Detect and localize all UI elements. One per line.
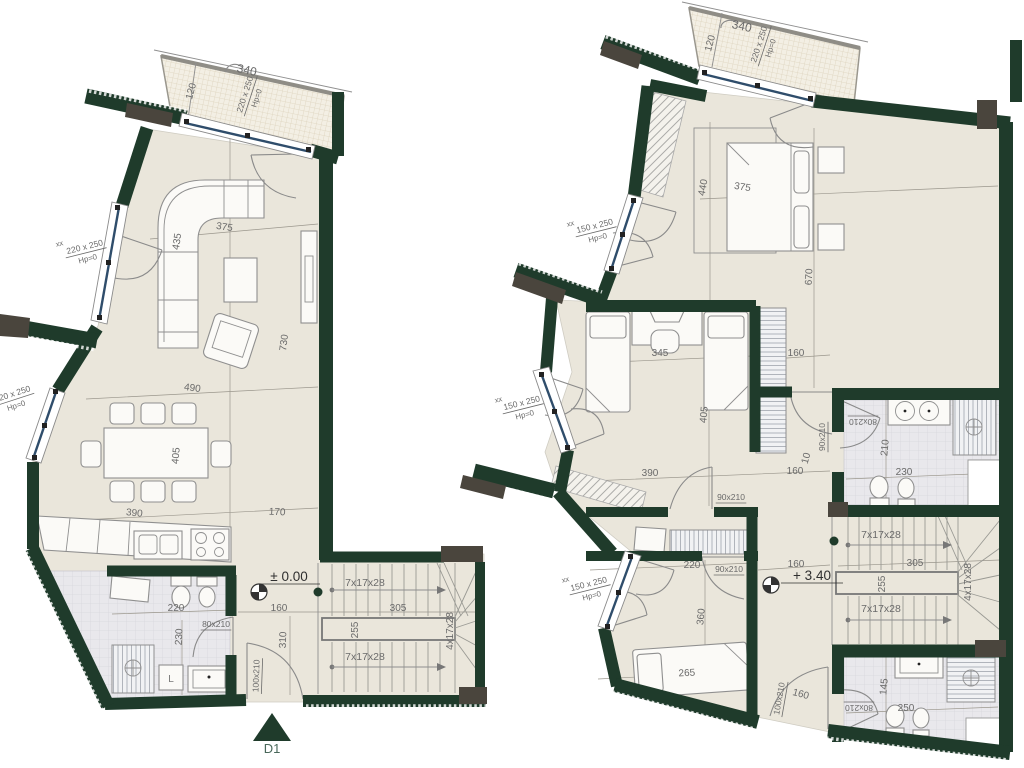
wall-column (459, 687, 487, 704)
dim-stair-305-ground: 305 (390, 603, 407, 614)
svg-text:± 0.00: ± 0.00 (270, 569, 307, 584)
bidet (199, 587, 215, 607)
svg-text:90x210: 90x210 (717, 492, 745, 502)
washer-label: L (168, 674, 174, 685)
stair-flight-upper-ground: 7x17x28 (345, 577, 385, 589)
shelf (110, 576, 150, 602)
dim-bed3-220: 220 (684, 560, 701, 571)
wall-column (0, 314, 30, 338)
svg-text:310: 310 (278, 631, 290, 648)
toilet-tank (171, 576, 191, 586)
dim-bath-220: 220 (168, 603, 185, 614)
shaft (968, 460, 1002, 506)
svg-text:220: 220 (168, 603, 185, 614)
dim-dining-405: 405 (170, 447, 182, 465)
door-size-bed2: 90x210 (716, 492, 747, 503)
bidet-tank (197, 577, 217, 586)
svg-text:145: 145 (878, 678, 890, 696)
svg-text:80x210: 80x210 (849, 417, 877, 427)
nightstand (818, 147, 844, 173)
svg-text:230: 230 (174, 628, 186, 646)
svg-text:670: 670 (804, 268, 816, 286)
stair-landing (836, 572, 958, 594)
dim-bath2-250: 250 (898, 703, 915, 714)
level-marker-ground (251, 584, 267, 600)
tv-unit (301, 231, 317, 323)
floor-plan-canvas: 340120220 x 250Hp=0375435730490405390170… (0, 0, 1024, 768)
stair-column (314, 588, 323, 597)
svg-text:80x210: 80x210 (202, 619, 230, 629)
dim-hall-160-ground: 160 (271, 603, 288, 614)
svg-text:7x17x28: 7x17x28 (345, 577, 385, 589)
svg-text:90x210: 90x210 (715, 564, 743, 574)
dim-bed2-390: 390 (642, 468, 659, 479)
svg-text:80x210: 80x210 (845, 703, 873, 713)
dim-hall-310: 310 (278, 631, 290, 648)
closet (670, 530, 752, 554)
dim-master-670: 670 (804, 268, 816, 286)
door-size-bath1-inner: 80x210 (848, 416, 879, 427)
bidet (898, 478, 914, 498)
door-size-bed3: 90x210 (714, 564, 745, 575)
stair-flight-upper-upper: 7x17x28 (861, 529, 901, 541)
svg-text:405: 405 (170, 447, 182, 465)
wall-column (977, 100, 997, 129)
svg-text:160: 160 (271, 603, 288, 614)
stair-winder-upper: 4x17x28 (963, 563, 974, 601)
svg-text:7x17x28: 7x17x28 (345, 651, 385, 663)
shaft (966, 718, 1000, 745)
dim-stair-255-ground: 255 (350, 621, 361, 638)
svg-text:390: 390 (642, 468, 659, 479)
svg-text:345: 345 (652, 348, 669, 359)
pillow (794, 206, 809, 248)
svg-text:210: 210 (879, 439, 891, 457)
svg-text:160: 160 (787, 466, 804, 477)
dining-table (104, 428, 208, 478)
svg-text:4x17x28: 4x17x28 (445, 612, 456, 650)
pillow (708, 316, 744, 338)
wall-column (975, 640, 1006, 657)
dim-bed2-405: 405 (698, 406, 710, 424)
svg-text:730: 730 (278, 333, 291, 351)
dim-dining-490: 490 (183, 382, 201, 395)
dim-bath1-210: 210 (879, 439, 891, 457)
svg-text:405: 405 (698, 406, 710, 424)
dim-bath-230: 230 (174, 628, 186, 646)
dim-bed3-265: 265 (678, 668, 696, 680)
pillow (794, 151, 809, 193)
svg-text:360: 360 (695, 608, 707, 626)
svg-text:+ 3.40: + 3.40 (793, 568, 831, 583)
svg-text:L: L (168, 674, 174, 685)
svg-text:D1: D1 (264, 741, 281, 756)
svg-text:490: 490 (183, 382, 201, 395)
door-size-bath-ground: 80x210 (201, 619, 232, 630)
svg-text:7x17x28: 7x17x28 (861, 603, 901, 615)
dim-hall-160-a: 160 (788, 348, 805, 359)
svg-text:305: 305 (907, 558, 924, 569)
door-size-bath1: 90x210 (817, 422, 828, 453)
svg-text:170: 170 (269, 507, 287, 519)
entry-marker-text: D1 (264, 741, 281, 756)
svg-text:220: 220 (684, 560, 701, 571)
svg-text:305: 305 (390, 603, 407, 614)
svg-text:390: 390 (125, 507, 143, 520)
dim-bed3-360: 360 (695, 608, 707, 626)
svg-text:4x17x28: 4x17x28 (963, 563, 974, 601)
svg-text:90x210: 90x210 (817, 423, 827, 451)
nightstand (818, 224, 844, 250)
stair-column (830, 537, 839, 546)
dim-bath1-230: 230 (896, 467, 913, 478)
coffee-table (224, 258, 257, 302)
svg-text:230: 230 (896, 467, 913, 478)
wall-column (828, 502, 848, 517)
svg-text:255: 255 (350, 621, 361, 638)
svg-text:7x17x28: 7x17x28 (861, 529, 901, 541)
vanity (888, 397, 950, 425)
pillow (590, 316, 626, 338)
dim-bath2-145: 145 (878, 678, 890, 696)
toilet (870, 476, 888, 498)
svg-text:250: 250 (898, 703, 915, 714)
dim-hall-160-upper: 160 (788, 559, 805, 570)
svg-text:265: 265 (678, 668, 696, 680)
dim-hall-170: 170 (269, 507, 287, 519)
dim-living-730: 730 (278, 333, 291, 351)
svg-text:255: 255 (877, 575, 888, 592)
stair-landing (322, 618, 455, 640)
svg-text:100x210: 100x210 (250, 659, 261, 692)
stove (191, 529, 229, 560)
level-marker-upper (763, 577, 779, 593)
dim-bed2-345: 345 (652, 348, 669, 359)
svg-text:160: 160 (788, 348, 805, 359)
dim-hall-160-b: 160 (787, 466, 804, 477)
desk-monitor (650, 311, 684, 322)
stair-flight-lower-upper: 7x17x28 (861, 603, 901, 615)
stair-flight-lower-ground: 7x17x28 (345, 651, 385, 663)
stair-winder-ground: 4x17x28 (445, 612, 456, 650)
chair (110, 403, 134, 424)
wall-column (441, 546, 483, 562)
dim-kitchen-390: 390 (125, 507, 143, 520)
bidet (913, 708, 929, 728)
dim-stair-255-upper: 255 (877, 575, 888, 592)
door-size-bath2: 80x210 (844, 702, 875, 713)
shelf (634, 527, 666, 552)
dim-stair-305-upper: 305 (907, 558, 924, 569)
svg-text:160: 160 (788, 559, 805, 570)
